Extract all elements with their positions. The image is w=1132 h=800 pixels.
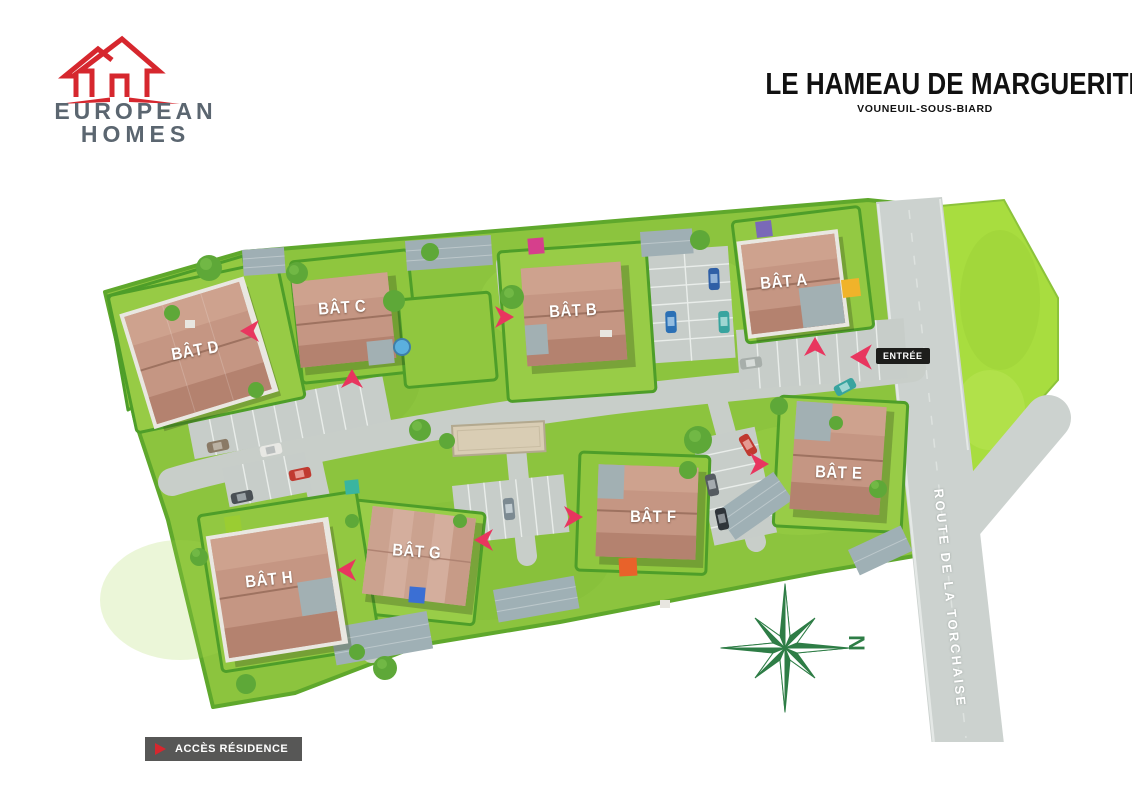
petanque-court — [452, 421, 545, 456]
brand-name-line2: HOMES — [28, 123, 243, 146]
brand-name-line1: EUROPEAN — [28, 100, 243, 123]
building-bat-h[interactable] — [206, 516, 352, 668]
entrance-label: ENTRÉE — [876, 348, 930, 364]
building-label-bat-g[interactable]: BÂT G — [392, 540, 442, 563]
header: LE HAMEAU DE MARGUERITE VOUNEUIL-SOUS-BI… — [735, 66, 1115, 115]
access-arrow-icon — [155, 743, 166, 755]
building-label-bat-b[interactable]: BÂT B — [549, 300, 598, 322]
building-bat-c[interactable] — [292, 271, 405, 375]
compass-north-letter: N — [843, 635, 869, 651]
brand-logo-text: EUROPEAN HOMES — [28, 100, 243, 147]
brand-logo: EUROPEAN HOMES — [28, 28, 243, 158]
access-legend-label: ACCÈS RÉSIDENCE — [175, 743, 288, 755]
building-label-bat-f[interactable]: BÂT F — [630, 507, 676, 527]
access-legend: ACCÈS RÉSIDENCE — [145, 737, 302, 761]
page-subtitle: VOUNEUIL-SOUS-BIARD — [735, 103, 1115, 115]
compass-rose-icon — [721, 584, 849, 712]
building-label-bat-a[interactable]: BÂT A — [759, 270, 808, 294]
building-label-bat-c[interactable]: BÂT C — [318, 296, 367, 319]
building-label-bat-e[interactable]: BÂT E — [815, 462, 863, 484]
site-plan-poster: EUROPEAN HOMES LE HAMEAU DE MARGUERITE V… — [0, 0, 1132, 800]
page-title: LE HAMEAU DE MARGUERITE — [765, 66, 1084, 102]
